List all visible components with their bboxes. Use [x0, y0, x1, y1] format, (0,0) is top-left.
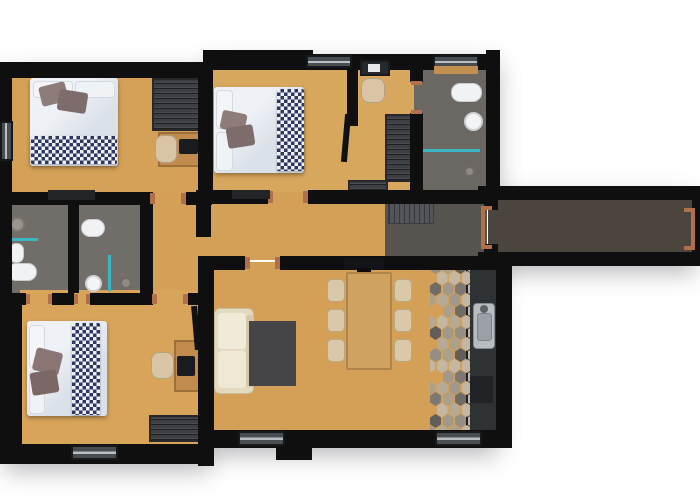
wall-bedroom2-bottom-b	[308, 190, 487, 204]
door-jamb	[183, 294, 188, 304]
hex-tile	[449, 381, 460, 395]
hex-tile	[437, 403, 448, 417]
bedroom1-door-leaf	[48, 190, 95, 200]
hex-tile	[449, 403, 460, 417]
hex-tile	[437, 337, 448, 351]
wall-hallway-living-a	[205, 256, 245, 270]
hex-tile	[455, 348, 466, 362]
hex-tile	[443, 326, 454, 340]
kitchen-faucet	[480, 305, 488, 313]
bedroom3-cushion	[29, 369, 59, 396]
dining-chair	[327, 279, 345, 302]
hex-tile	[455, 326, 466, 340]
living-rug	[249, 321, 296, 386]
bedroom3-chair	[151, 352, 174, 379]
hex-tile	[462, 403, 471, 417]
corridor-floor	[150, 192, 198, 304]
hex-tile	[462, 381, 471, 395]
bathroom1-sink	[10, 217, 25, 232]
bedroom1-cushion	[57, 89, 89, 114]
wall-bath-bottom-b	[52, 293, 74, 305]
wall-living-right	[496, 256, 512, 448]
door-jamb	[26, 294, 30, 304]
bedroom3-monitor	[177, 356, 195, 376]
hex-tile	[430, 326, 441, 340]
door-jamb	[303, 191, 308, 203]
hex-tile	[443, 348, 454, 362]
bathroom2-sink	[85, 275, 102, 292]
window	[306, 55, 352, 68]
wall-bathroom3-left-a	[410, 64, 423, 82]
door-jamb	[245, 257, 250, 269]
bathroom3-toilet	[451, 83, 482, 102]
bedroom2-blanket	[277, 89, 304, 171]
hex-tile	[437, 359, 448, 373]
hex-tile	[443, 304, 454, 318]
hex-tile	[455, 282, 466, 296]
bedroom1-blanket	[31, 136, 117, 164]
wall-top-left	[0, 62, 206, 78]
wall-left-upper	[0, 62, 12, 302]
entry-door-frame	[481, 206, 492, 210]
wall-bathroom2-right	[140, 192, 153, 305]
bathroom3-sink	[464, 112, 483, 131]
hex-tile	[449, 293, 460, 307]
window	[435, 431, 482, 446]
wall-hall-stub	[196, 190, 211, 237]
balcony-door-frame	[684, 246, 695, 250]
door-jamb	[275, 257, 280, 269]
hex-tile	[443, 282, 454, 296]
wall-right-top-block	[486, 50, 500, 200]
door-jamb	[411, 110, 422, 114]
door-jamb	[181, 193, 186, 204]
hex-tile	[437, 381, 448, 395]
window	[238, 431, 285, 446]
wall-top-mid-raised	[203, 50, 313, 70]
kitchen-stove	[470, 376, 493, 403]
hex-tile	[430, 348, 441, 362]
dining-chair	[394, 339, 412, 362]
wall-bathroom3-left-b	[410, 113, 423, 193]
bedroom1-laptop	[179, 139, 198, 154]
bedroom2-door-leaf	[232, 190, 270, 199]
hex-tile	[455, 392, 466, 406]
hex-tile	[455, 304, 466, 318]
hex-tile	[443, 414, 454, 428]
hex-tile	[462, 271, 471, 285]
wall-hallway-living-b	[280, 256, 500, 270]
kitchen-counter	[466, 264, 498, 434]
hex-tile	[449, 337, 460, 351]
hex-tile	[430, 414, 441, 428]
door-jamb	[86, 294, 90, 304]
dining-table	[346, 272, 392, 370]
bedroom1-wardrobe	[152, 78, 203, 131]
hex-tile	[437, 271, 448, 285]
hex-tile	[449, 359, 460, 373]
hex-tile	[455, 370, 466, 384]
bedroom2-desk-paper	[368, 64, 380, 72]
hex-tile	[462, 293, 471, 307]
wall-bedroom1-bedroom2	[198, 62, 213, 196]
wall-bedroom3-left	[0, 293, 22, 464]
bathroom2-shower-head	[120, 277, 132, 289]
door-jamb	[74, 294, 78, 304]
hex-tile	[449, 315, 460, 329]
bathroom2-toilet	[81, 219, 105, 237]
wall-living-bottom-notch	[276, 444, 312, 460]
kitchen-sink-bowl	[477, 313, 492, 341]
hex-tile	[437, 293, 448, 307]
entry-doormat	[388, 201, 434, 224]
living-sofa-cushion	[218, 351, 246, 388]
balcony-door-frame	[684, 208, 695, 212]
hex-tile	[437, 315, 448, 329]
hex-tile	[430, 282, 441, 296]
wall-bathrooms-divider	[68, 200, 79, 293]
dining-chair	[394, 279, 412, 302]
living-tv-stand	[357, 268, 371, 272]
bedroom2-cushion	[226, 124, 256, 149]
floor-plan	[0, 0, 700, 500]
hex-tile	[430, 392, 441, 406]
wall-balcony-top	[478, 186, 700, 200]
bathroom2-shower-glass	[108, 255, 111, 291]
kitchen-hex-tiles	[430, 264, 470, 434]
dining-chair	[327, 339, 345, 362]
door-jamb	[48, 294, 52, 304]
bathroom3-shower-head	[464, 166, 475, 177]
bedroom1-chair	[155, 135, 177, 163]
bedroom3-dresser	[149, 415, 202, 442]
entry-door-frame	[481, 245, 492, 249]
window	[0, 121, 13, 161]
hex-tile	[443, 392, 454, 406]
balcony-floor	[488, 196, 696, 254]
hex-tile	[462, 359, 471, 373]
bathroom3-window-sill	[434, 66, 478, 74]
dining-chair	[327, 309, 345, 332]
hex-tile	[462, 315, 471, 329]
hex-tile	[449, 271, 460, 285]
bedroom2-chair	[361, 78, 385, 103]
door-jamb	[152, 294, 157, 304]
living-sofa-cushion	[218, 313, 246, 349]
hex-tile	[455, 414, 466, 428]
bathroom3-shower-glass	[419, 149, 480, 152]
hex-tile	[462, 337, 471, 351]
door-jamb	[150, 193, 155, 204]
bedroom3-blanket	[72, 323, 100, 415]
entry-door-frame	[481, 209, 485, 247]
balcony-door-frame	[691, 211, 695, 247]
window	[71, 445, 118, 460]
door-jamb	[411, 81, 422, 85]
wall-balcony-bottom	[478, 252, 700, 266]
hex-tile	[443, 370, 454, 384]
wall-bath-bottom-c	[90, 293, 152, 305]
dining-chair	[394, 309, 412, 332]
bathroom1-shower-glass	[8, 238, 38, 241]
